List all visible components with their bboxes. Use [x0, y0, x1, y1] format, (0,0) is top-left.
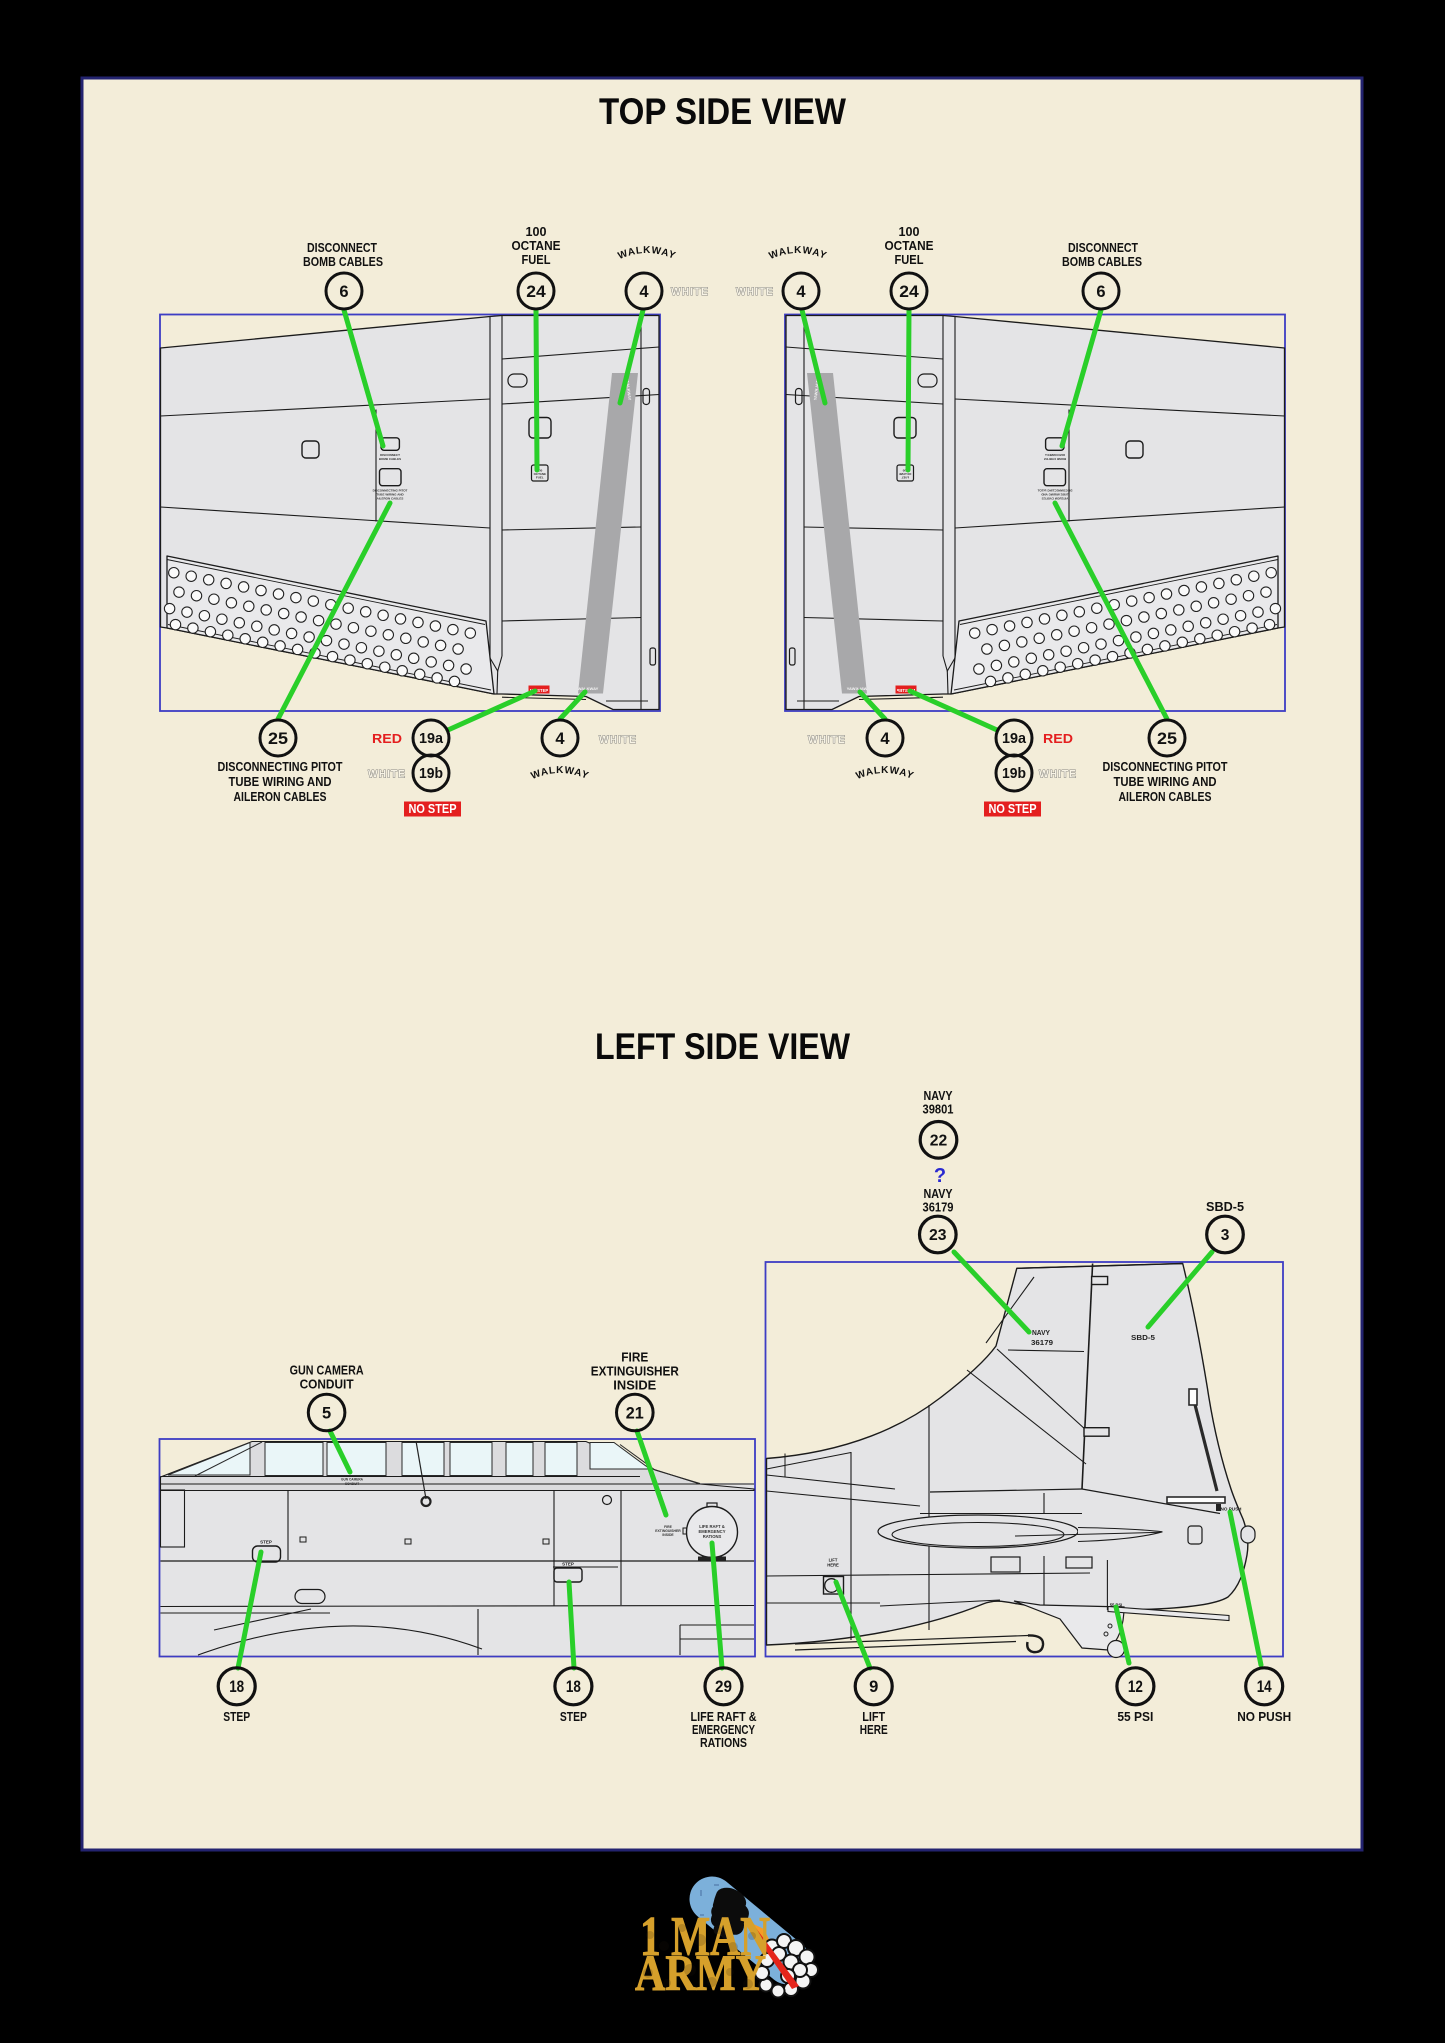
svg-text:14: 14 [1257, 1678, 1273, 1696]
svg-text:EXTINGUISHER: EXTINGUISHER [591, 1365, 679, 1379]
svg-text:CONDUIT: CONDUIT [300, 1378, 354, 1392]
svg-text:GUN CAMERA: GUN CAMERA [341, 1478, 364, 1482]
svg-text:TUBE WIRING AND: TUBE WIRING AND [376, 493, 404, 497]
svg-text:22: 22 [930, 1132, 948, 1149]
svg-text:4: 4 [639, 283, 649, 301]
svg-text:STEP: STEP [260, 1540, 272, 1545]
svg-text:55 PSI: 55 PSI [1117, 1710, 1153, 1724]
svg-text:25: 25 [268, 730, 288, 748]
svg-text:25: 25 [1157, 730, 1177, 748]
svg-text:TUBE WIRING AND: TUBE WIRING AND [229, 774, 332, 789]
svg-text:19b: 19b [419, 766, 443, 782]
svg-text:RED: RED [372, 731, 402, 746]
svg-text:4: 4 [880, 730, 890, 748]
svg-text:EXTINGUISHER: EXTINGUISHER [655, 1529, 681, 1533]
svg-text:OCTANE: OCTANE [512, 238, 561, 253]
svg-text:24: 24 [526, 283, 546, 301]
svg-text:OCTANE: OCTANE [885, 238, 934, 253]
svg-text:NAVY: NAVY [1032, 1328, 1050, 1337]
svg-text:DISCONNECT: DISCONNECT [1068, 240, 1138, 255]
svg-text:TOP SIDE VIEW: TOP SIDE VIEW [599, 91, 846, 132]
svg-text:36179: 36179 [923, 1201, 954, 1215]
svg-text:AILERON CABLES: AILERON CABLES [377, 497, 404, 501]
svg-text:FIRE: FIRE [621, 1351, 648, 1365]
svg-text:100: 100 [899, 224, 920, 239]
svg-text:HERE: HERE [827, 1563, 839, 1568]
svg-text:INSIDE: INSIDE [662, 1533, 674, 1537]
svg-text:19a: 19a [419, 731, 444, 747]
svg-text:29: 29 [715, 1678, 732, 1696]
svg-text:NO STEP: NO STEP [989, 801, 1037, 816]
svg-text:WHITE: WHITE [599, 734, 637, 746]
svg-text:STEP: STEP [223, 1710, 250, 1724]
svg-text:RATIONS: RATIONS [703, 1534, 722, 1539]
svg-text:STEP: STEP [560, 1710, 587, 1724]
svg-text:DISCONNECTING PITOT: DISCONNECTING PITOT [1103, 759, 1228, 774]
svg-text:WALKWAY: WALKWAY [578, 686, 599, 691]
svg-text:6: 6 [339, 283, 348, 301]
svg-text:NO STEP: NO STEP [409, 801, 457, 816]
svg-text:12: 12 [1128, 1678, 1143, 1696]
svg-text:WHITE: WHITE [671, 286, 709, 298]
svg-text:DISCONNECT: DISCONNECT [380, 453, 400, 457]
svg-text:WHITE: WHITE [736, 286, 774, 298]
svg-text:19a: 19a [1002, 731, 1027, 747]
svg-text:LIFE RAFT &: LIFE RAFT & [699, 1524, 725, 1529]
svg-text:NAVY: NAVY [924, 1187, 954, 1201]
svg-text:STEP: STEP [562, 1562, 574, 1567]
svg-text:4: 4 [555, 730, 565, 748]
svg-text:TUBE WIRING AND: TUBE WIRING AND [1114, 774, 1217, 789]
svg-text:DISCONNECTING PITOT: DISCONNECTING PITOT [373, 489, 408, 493]
svg-text:6: 6 [1096, 283, 1105, 301]
svg-text:LIFT: LIFT [829, 1558, 838, 1563]
svg-text:NAVY: NAVY [924, 1089, 954, 1103]
svg-text:NO PUSH: NO PUSH [1237, 1710, 1291, 1724]
svg-text:LIFT: LIFT [862, 1710, 885, 1724]
svg-text:RED: RED [1043, 731, 1073, 746]
svg-text:FIRE: FIRE [664, 1525, 672, 1529]
svg-text:3: 3 [1221, 1227, 1230, 1244]
svg-text:RATIONS: RATIONS [700, 1736, 747, 1750]
svg-text:BOMB CABLES: BOMB CABLES [379, 457, 401, 461]
svg-text:AILERON CABLES: AILERON CABLES [1119, 789, 1212, 804]
svg-text:18: 18 [566, 1678, 581, 1696]
svg-text:SBD-5: SBD-5 [1131, 1333, 1155, 1342]
svg-text:24: 24 [899, 283, 919, 301]
svg-text:LIFE RAFT &: LIFE RAFT & [691, 1710, 757, 1724]
svg-text:4: 4 [796, 283, 806, 301]
svg-text:CONDUIT: CONDUIT [345, 1482, 360, 1486]
svg-text:SBD-5: SBD-5 [1206, 1200, 1244, 1214]
svg-text:21: 21 [626, 1404, 644, 1422]
svg-text:GUN CAMERA: GUN CAMERA [290, 1364, 364, 1378]
svg-text:LEFT SIDE VIEW: LEFT SIDE VIEW [595, 1026, 850, 1067]
svg-text:FUEL: FUEL [536, 476, 544, 480]
svg-text:36179: 36179 [1031, 1338, 1053, 1347]
svg-text:9: 9 [869, 1678, 878, 1696]
svg-text:WHITE: WHITE [368, 769, 406, 781]
svg-text:FUEL: FUEL [522, 252, 551, 267]
svg-text:39801: 39801 [923, 1103, 954, 1117]
svg-text:EMERGENCY: EMERGENCY [692, 1723, 756, 1737]
svg-text:EMERGENCY: EMERGENCY [699, 1529, 726, 1534]
svg-text:FUEL: FUEL [895, 252, 924, 267]
svg-text:ARMY: ARMY [635, 1946, 766, 2002]
svg-text:19b: 19b [1002, 766, 1026, 782]
svg-text:100: 100 [526, 224, 547, 239]
svg-text:INSIDE: INSIDE [613, 1379, 656, 1393]
svg-text:23: 23 [929, 1227, 947, 1244]
svg-text:WHITE: WHITE [1039, 769, 1077, 781]
svg-text:?: ? [934, 1165, 946, 1187]
svg-text:BOMB CABLES: BOMB CABLES [303, 254, 383, 269]
svg-text:5: 5 [322, 1404, 331, 1422]
svg-text:BOMB CABLES: BOMB CABLES [1062, 254, 1142, 269]
svg-text:WHITE: WHITE [808, 734, 846, 746]
svg-text:DISCONNECTING PITOT: DISCONNECTING PITOT [218, 759, 343, 774]
svg-text:AILERON CABLES: AILERON CABLES [234, 789, 327, 804]
svg-text:18: 18 [229, 1678, 244, 1696]
svg-text:DISCONNECT: DISCONNECT [307, 240, 377, 255]
svg-text:HERE: HERE [860, 1723, 888, 1737]
